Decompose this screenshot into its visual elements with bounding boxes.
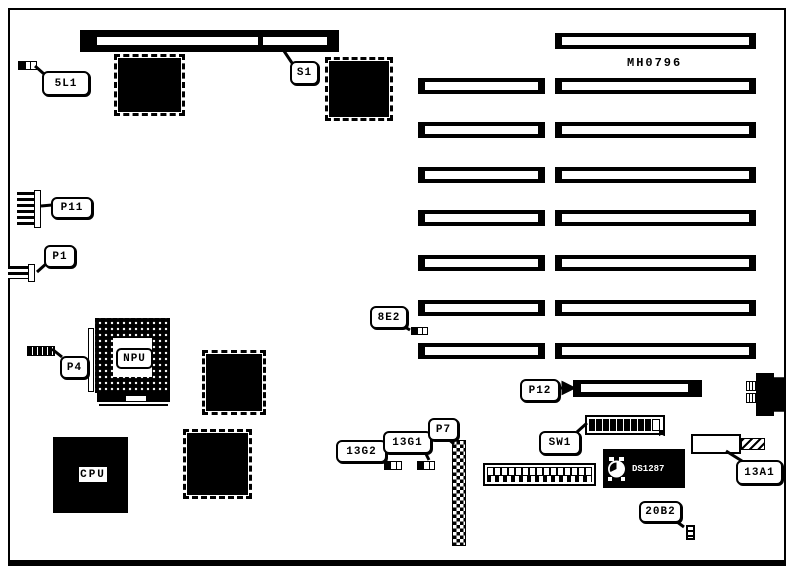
npu-label-text: NPU <box>123 353 146 365</box>
slot-p12 <box>573 380 702 397</box>
qfp-chip-1 <box>118 58 181 112</box>
connector-p11-housing <box>34 190 41 228</box>
expansion-slot-left-4 <box>418 210 545 226</box>
callout-p12: P12 <box>520 379 560 402</box>
callout-5l1: 5L1 <box>42 71 90 96</box>
callout-13a1: 13A1 <box>736 460 783 485</box>
keyboard-din-connector <box>756 373 786 416</box>
expansion-slot-right-2 <box>555 78 756 94</box>
npu-socket-bottom-bar <box>97 393 170 402</box>
expansion-slot-left-7 <box>418 343 545 359</box>
alarm-clock-icon <box>606 456 628 482</box>
expansion-slot-left-5 <box>418 255 545 271</box>
cpu-label-text: CPU <box>80 469 106 481</box>
callout-p11-text: P11 <box>61 202 84 214</box>
jumper-20b2 <box>686 525 695 540</box>
keyboard-connector-pin-block-2 <box>746 393 757 403</box>
callout-20b2: 20B2 <box>639 501 682 523</box>
expansion-slot-right-6 <box>555 255 756 271</box>
jumper-5l1 <box>18 61 37 70</box>
callout-p11: P11 <box>51 197 93 219</box>
callout-13g2: 13G2 <box>336 440 387 463</box>
socket-13a1 <box>691 434 741 454</box>
npu-socket-underline <box>99 404 168 406</box>
terminal-block-connector <box>483 463 596 486</box>
callout-13g1-text: 13G1 <box>392 437 422 449</box>
expansion-slot-left-2 <box>418 122 545 138</box>
expansion-slot-left-3 <box>418 167 545 183</box>
keyboard-connector-pin-block-1 <box>746 381 757 391</box>
expansion-slot-right-5 <box>555 210 756 226</box>
header-p7 <box>452 440 466 546</box>
slot-s1-edge-connector <box>80 30 339 52</box>
callout-20b2-text: 20B2 <box>645 506 675 518</box>
callout-p4-text: P4 <box>67 362 82 374</box>
jumper-13g2 <box>384 461 402 470</box>
resistor-pack-13a1 <box>741 438 765 450</box>
callout-5l1-text: 5L1 <box>55 78 78 90</box>
expansion-slot-right-3 <box>555 122 756 138</box>
callout-p12-text: P12 <box>529 385 552 397</box>
cpu-label: CPU <box>78 466 108 483</box>
qfp-chip-3 <box>206 354 262 411</box>
npu-label: NPU <box>116 348 153 369</box>
callout-13g1: 13G1 <box>383 431 432 454</box>
callout-p7-text: P7 <box>436 424 451 436</box>
callout-8e2: 8E2 <box>370 306 408 329</box>
callout-p1-text: P1 <box>52 251 67 263</box>
callout-s1-text: S1 <box>297 67 312 79</box>
expansion-slot-left-6 <box>418 300 545 316</box>
jumper-13g1 <box>417 461 435 470</box>
connector-p1-housing <box>28 264 35 282</box>
connector-p1-pins <box>8 266 28 279</box>
callout-sw1-text: SW1 <box>549 437 572 449</box>
slot-s1-segment-2 <box>263 37 327 45</box>
callout-sw1: SW1 <box>539 431 581 455</box>
rtc-chip-dallas-ds1287: DALLAS DS1287 REAL TIME <box>603 449 685 488</box>
slot-s1-segment-1 <box>97 37 258 45</box>
cpu-chip: CPU <box>53 437 128 513</box>
callout-13g2-text: 13G2 <box>346 446 376 458</box>
qfp-chip-4 <box>187 433 248 495</box>
callout-p4: P4 <box>60 356 89 379</box>
qfp-chip-2 <box>329 61 389 117</box>
board-code-text: MH0796 <box>627 56 682 70</box>
callout-s1: S1 <box>290 61 319 85</box>
jumper-8e2 <box>411 327 428 335</box>
rtc-text-line2: DS1287 <box>632 464 681 474</box>
callout-p1: P1 <box>44 245 76 268</box>
header-p4 <box>27 346 55 356</box>
expansion-slot-left-1 <box>418 78 545 94</box>
expansion-slot-right-1 <box>555 33 756 49</box>
expansion-slot-right-4 <box>555 167 756 183</box>
expansion-slot-right-7 <box>555 300 756 316</box>
callout-p7: P7 <box>428 418 459 441</box>
connector-p11-pins <box>17 192 34 226</box>
rtc-text-line1: DALLAS <box>632 434 681 444</box>
callout-8e2-text: 8E2 <box>378 312 401 324</box>
callout-13a1-text: 13A1 <box>744 467 774 479</box>
expansion-slot-right-8 <box>555 343 756 359</box>
motherboard-diagram: MH0796 NPU CPU <box>0 0 791 569</box>
